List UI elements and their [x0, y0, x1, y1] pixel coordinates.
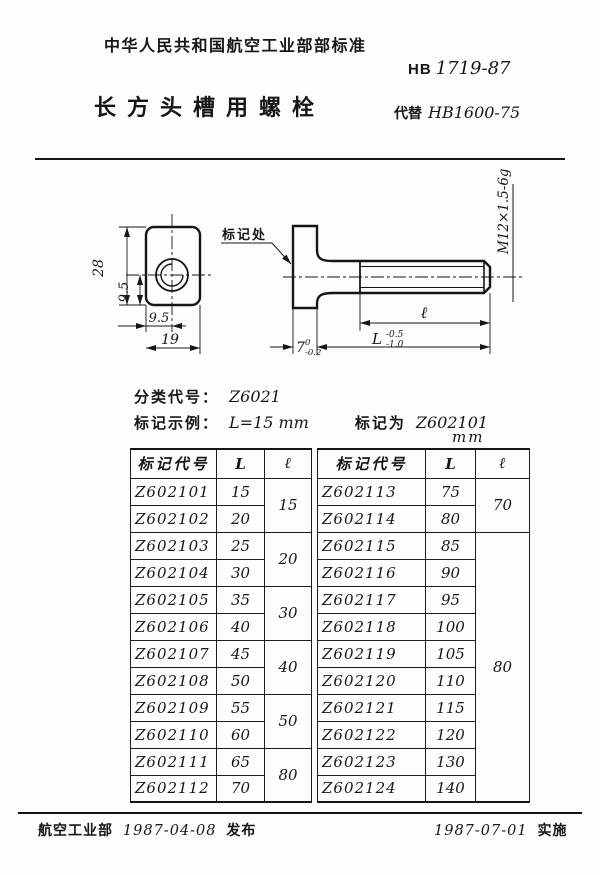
- size-tables: 标记代号 L ℓ Z6021011515 Z60210220 Z60210325…: [130, 448, 530, 803]
- mark-location-label: 标记处: [221, 227, 267, 242]
- example-value: L=15 mm: [229, 413, 309, 432]
- class-code-value: Z6021: [229, 387, 281, 406]
- dim-hole-offset-vertical: 9.5: [117, 282, 132, 303]
- classification-line: 分类代号：Z6021: [134, 386, 281, 407]
- footer-issue-label: 发布: [226, 822, 256, 838]
- column-header-L: L: [217, 449, 265, 478]
- dim-head-height: 28: [91, 259, 107, 278]
- table-row: Z6021095550: [131, 694, 312, 721]
- table-row: Z6021053530: [131, 586, 312, 613]
- dim-head-thickness: 7 0 -0.2: [296, 332, 321, 358]
- table-row: Z6021158580: [318, 532, 530, 559]
- dim-thread-length: ℓ: [421, 303, 428, 322]
- standard-organization: 中华人民共和国航空工业部部标准: [104, 32, 367, 56]
- column-header-code: 标记代号: [318, 449, 426, 478]
- replaces-label: 代替: [394, 105, 422, 121]
- thread-callout: M12×1.5-6g: [496, 168, 513, 302]
- table-row: Z6021032520: [131, 532, 312, 559]
- footer-implement: 1987-07-01 实施: [428, 820, 568, 840]
- table-header-row: 标记代号 L ℓ: [131, 449, 312, 478]
- dim-overall-length: L -0.5 -1.0: [371, 324, 408, 350]
- table-header-row: 标记代号 L ℓ: [318, 449, 530, 478]
- document-page: 中华人民共和国航空工业部部标准 HB1719-87 长方头槽用螺栓 代替HB16…: [0, 0, 600, 875]
- column-header-l: ℓ: [476, 449, 530, 478]
- marking-example-line: 标记示例：L=15 mm标记为Z602101: [134, 412, 488, 433]
- front-view-head: [126, 214, 214, 332]
- class-code-label: 分类代号：: [134, 389, 219, 406]
- dim-head-width: 19: [161, 332, 179, 348]
- footer-divider: [18, 812, 582, 814]
- table-row: Z6021011515: [131, 478, 312, 505]
- table-row: Z6021116580: [131, 748, 312, 775]
- technical-drawing: 28 9.5 9.5 19 标记处 M12×1.5-: [0, 166, 600, 386]
- standard-number-value: 1719-87: [436, 58, 511, 79]
- mark-location-callout: 标记处: [221, 227, 291, 264]
- table-row: Z6021137570: [318, 478, 530, 505]
- side-view-bolt: [283, 226, 523, 308]
- footer-org: 航空工业部: [38, 822, 113, 838]
- dim-hole-offset-horizontal: 9.5: [149, 311, 170, 326]
- footer-issue-date: 1987-04-08: [123, 823, 217, 839]
- thread-callout-text: M12×1.5-6g: [496, 168, 512, 255]
- size-table-left: 标记代号 L ℓ Z6021011515 Z60210220 Z60210325…: [130, 448, 312, 803]
- table-row: Z6021074540: [131, 640, 312, 667]
- column-header-l: ℓ: [265, 449, 312, 478]
- replaces-note: 代替HB1600-75: [394, 103, 520, 123]
- footer-issue: 航空工业部 1987-04-08 发布: [38, 820, 256, 840]
- standard-number: HB1719-87: [408, 58, 510, 79]
- mark-as-label: 标记为: [355, 415, 406, 432]
- example-label: 标记示例：: [134, 415, 219, 432]
- page-title: 长方头槽用螺栓: [94, 90, 325, 122]
- column-header-L: L: [426, 449, 476, 478]
- footer-implement-label: 实施: [538, 822, 568, 838]
- column-header-code: 标记代号: [131, 449, 217, 478]
- replaces-number: HB1600-75: [428, 103, 520, 122]
- header-divider: [35, 158, 565, 160]
- units-label: mm: [452, 428, 484, 446]
- size-table-right: 标记代号 L ℓ Z6021137570 Z60211480 Z60211585…: [317, 448, 530, 803]
- footer-implement-date: 1987-07-01: [434, 823, 528, 839]
- standard-prefix: HB: [408, 61, 432, 78]
